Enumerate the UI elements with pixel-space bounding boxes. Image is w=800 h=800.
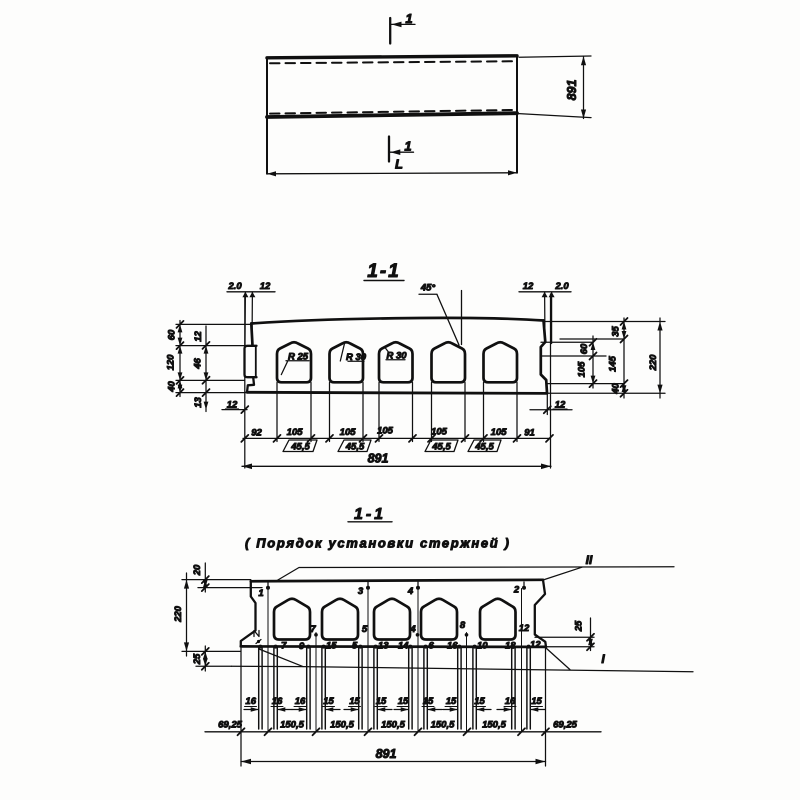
svg-text:45,5: 45,5 — [290, 442, 310, 453]
svg-text:150,5: 150,5 — [381, 720, 405, 731]
svg-text:15: 15 — [423, 696, 434, 707]
svg-text:35: 35 — [611, 326, 622, 337]
svg-text:46: 46 — [193, 358, 204, 370]
svg-text:16: 16 — [272, 696, 283, 707]
svg-text:891: 891 — [565, 80, 579, 101]
svg-text:12: 12 — [260, 281, 271, 292]
svg-text:II: II — [586, 553, 593, 567]
svg-text:69,25: 69,25 — [553, 720, 577, 731]
svg-text:16: 16 — [245, 696, 256, 707]
svg-text:105: 105 — [431, 427, 448, 438]
svg-text:9: 9 — [299, 641, 305, 652]
svg-text:20: 20 — [192, 564, 203, 576]
svg-text:150,5: 150,5 — [280, 720, 304, 731]
svg-text:16: 16 — [447, 641, 458, 652]
svg-text:45,5: 45,5 — [431, 442, 451, 453]
svg-text:13: 13 — [378, 641, 389, 652]
svg-text:15: 15 — [376, 696, 387, 707]
svg-text:L: L — [395, 157, 403, 172]
svg-text:12: 12 — [530, 640, 541, 651]
svg-text:16: 16 — [505, 696, 516, 707]
svg-text:92: 92 — [251, 428, 262, 439]
svg-text:60: 60 — [167, 329, 178, 340]
svg-text:105: 105 — [287, 427, 304, 438]
svg-text:10: 10 — [477, 641, 488, 652]
svg-text:1-1: 1-1 — [354, 506, 386, 523]
svg-text:5: 5 — [362, 624, 368, 635]
svg-text:15: 15 — [326, 641, 337, 652]
svg-text:105: 105 — [340, 427, 357, 438]
svg-text:150,5: 150,5 — [431, 720, 455, 731]
svg-text:150,5: 150,5 — [482, 720, 506, 731]
svg-text:15: 15 — [531, 696, 542, 707]
svg-text:16: 16 — [295, 696, 306, 707]
svg-text:91: 91 — [524, 428, 535, 439]
svg-text:3: 3 — [358, 586, 364, 597]
svg-text:145: 145 — [608, 355, 619, 372]
svg-text:25: 25 — [192, 653, 203, 665]
svg-text:15: 15 — [398, 696, 409, 707]
svg-text:45,5: 45,5 — [474, 442, 494, 453]
svg-text:15: 15 — [446, 696, 457, 707]
svg-text:4: 4 — [409, 624, 416, 635]
svg-text:4: 4 — [407, 586, 414, 597]
svg-text:2: 2 — [513, 585, 520, 596]
svg-text:2.0: 2.0 — [227, 281, 242, 292]
svg-text:6: 6 — [429, 641, 435, 652]
svg-text:891: 891 — [376, 747, 397, 761]
svg-text:45,5: 45,5 — [345, 442, 365, 453]
svg-text:8: 8 — [460, 620, 466, 631]
svg-text:15: 15 — [349, 696, 360, 707]
svg-text:2.0: 2.0 — [554, 281, 569, 292]
svg-text:7: 7 — [281, 641, 287, 652]
svg-text:12: 12 — [193, 331, 204, 342]
svg-text:5: 5 — [352, 641, 358, 652]
svg-text:1: 1 — [405, 11, 412, 26]
svg-text:220: 220 — [173, 605, 184, 623]
svg-text:45°: 45° — [420, 283, 436, 294]
svg-text:1: 1 — [404, 139, 411, 154]
svg-text:14: 14 — [398, 641, 409, 652]
svg-text:12: 12 — [519, 623, 530, 634]
svg-text:12: 12 — [523, 281, 534, 292]
svg-text:1: 1 — [258, 588, 263, 599]
svg-text:891: 891 — [368, 452, 389, 466]
svg-text:13: 13 — [193, 397, 204, 408]
svg-text:40: 40 — [167, 381, 178, 393]
svg-text:105: 105 — [491, 427, 508, 438]
svg-text:1-1: 1-1 — [367, 261, 400, 282]
svg-text:( Порядок установки стержн: ( Порядок установки стержней ) — [245, 536, 509, 551]
svg-text:105: 105 — [377, 426, 394, 437]
svg-text:15: 15 — [323, 696, 334, 707]
svg-text:105: 105 — [577, 361, 588, 378]
svg-text:220: 220 — [648, 354, 659, 372]
svg-text:69,25: 69,25 — [218, 720, 242, 731]
svg-text:15: 15 — [474, 696, 485, 707]
svg-text:120: 120 — [166, 354, 177, 371]
svg-text:60: 60 — [579, 343, 590, 354]
svg-text:150,5: 150,5 — [330, 720, 354, 731]
svg-text:25: 25 — [574, 620, 585, 632]
svg-text:40: 40 — [611, 383, 622, 395]
